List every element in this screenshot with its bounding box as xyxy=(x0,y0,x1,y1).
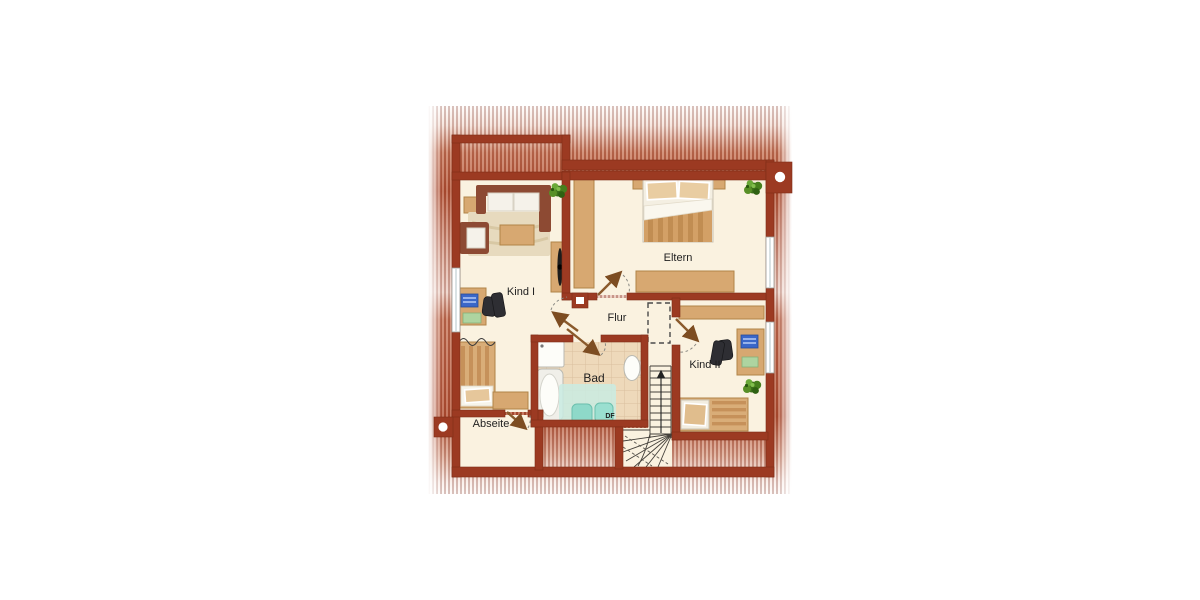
label-abseite: Abseite xyxy=(473,418,510,430)
wardrobe-eltern xyxy=(574,178,594,288)
floorplan-svg: Kind I Eltern Flur Bad Kind II Abseite D… xyxy=(0,0,1200,600)
knee-wall-right xyxy=(562,171,766,180)
wall-bad-south xyxy=(531,420,648,427)
armchair xyxy=(459,222,489,254)
bed-kind1 xyxy=(459,339,495,409)
window-right-kind2 xyxy=(766,322,774,373)
window-right-eltern xyxy=(766,237,774,288)
wall-kind2-west-b xyxy=(672,345,680,440)
double-bed xyxy=(643,178,713,242)
label-flur: Flur xyxy=(608,312,627,324)
wall-bad-east xyxy=(641,335,648,427)
outer-wall-bottom xyxy=(452,467,774,477)
wall-stub-duct xyxy=(572,293,588,308)
wall-eltern-south-b xyxy=(627,293,766,300)
foot-shelf xyxy=(493,392,528,409)
coffee-table xyxy=(500,225,534,245)
knee-wall-left xyxy=(452,172,570,180)
label-roof-window: DF xyxy=(605,413,615,420)
wall-winder-west xyxy=(615,427,623,469)
floorplan-canvas: Kind I Eltern Flur Bad Kind II Abseite D… xyxy=(0,0,1200,600)
window-left xyxy=(452,268,460,332)
label-bad: Bad xyxy=(583,371,604,385)
wall-kind2-west-a xyxy=(672,298,680,317)
shelf-kind2 xyxy=(679,306,764,319)
label-kind1: Kind I xyxy=(507,286,535,298)
dresser xyxy=(636,271,734,292)
label-eltern: Eltern xyxy=(664,252,693,264)
wall-bad-west xyxy=(531,335,538,427)
chimney-top-right xyxy=(766,162,792,193)
outer-wall-top-right xyxy=(562,160,774,170)
outer-wall-top-left xyxy=(452,135,570,143)
wall-bad-north-a xyxy=(531,335,573,342)
outer-wall-right xyxy=(766,160,774,477)
wall-abseite-north-a xyxy=(452,410,505,417)
label-kind2: Kind II xyxy=(689,359,720,371)
bed-kind2 xyxy=(679,398,748,431)
wall-kind2-south xyxy=(672,432,768,440)
desk-kind1 xyxy=(458,288,486,325)
desk-kind2 xyxy=(737,329,764,375)
chimney-bottom-left xyxy=(434,417,453,437)
shower xyxy=(537,341,564,367)
